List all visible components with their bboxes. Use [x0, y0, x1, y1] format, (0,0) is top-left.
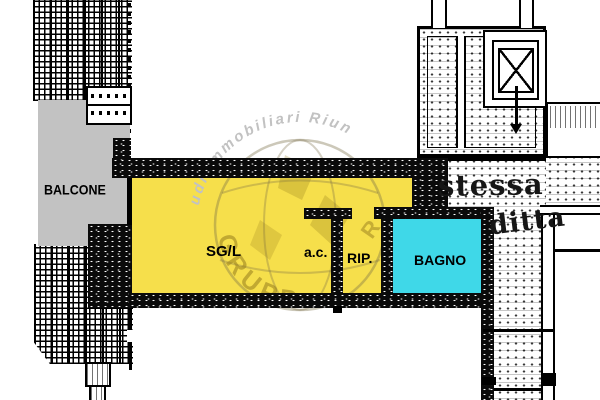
wall-partition-bar: [304, 208, 352, 219]
wall-corridor-crossline-2: [494, 388, 541, 391]
right-extension-room: [546, 102, 600, 158]
stairwell-divider-wall: [456, 36, 466, 148]
extension-hatch: [550, 106, 598, 128]
room-label-sgl: SG/L: [206, 243, 241, 260]
balcony-area-tail: [38, 228, 89, 246]
floor-plan: udi Immobiliari Riun GRUPPO R BALCONE SG…: [0, 0, 600, 400]
stair-arrow-head-icon: [510, 124, 522, 134]
balcony-panel: [86, 86, 132, 125]
door-blob-right: [541, 373, 556, 386]
wall-edge-gap: [127, 330, 134, 342]
wall-thin-left: [127, 178, 132, 225]
corridor-hatch: [488, 214, 542, 400]
neighbor-note-stessa: stessa: [438, 167, 544, 203]
wall-left-chunk: [88, 224, 132, 308]
door-blob-left: [482, 377, 496, 385]
room-label-bagno: BAGNO: [414, 252, 466, 268]
balcony-label: BALCONE: [44, 182, 106, 197]
room-label-ac: a.c.: [304, 244, 327, 260]
wall-top-band: [112, 158, 414, 178]
wall-partition-stem-2: [381, 219, 393, 295]
room-label-rip: RIP.: [347, 250, 372, 266]
wall-bottom-band: [129, 293, 494, 308]
panel-dash-row: [91, 111, 127, 115]
panel-dash-row: [91, 94, 127, 98]
wall-stub-top-right: [519, 0, 534, 28]
panel-divider: [88, 104, 130, 106]
wall-corridor-crossline: [483, 329, 555, 332]
wall-tick: [333, 306, 342, 313]
wall-stub-top-left: [431, 0, 447, 28]
railing-stub-outer: [85, 362, 111, 387]
wall-small-blob: [113, 138, 131, 160]
stair-direction-arrow-icon: [515, 86, 518, 124]
railing-stub-inner: [89, 387, 106, 400]
wall-line-right-room: [555, 249, 600, 252]
wall-partition-stem-1: [331, 219, 343, 295]
wall-bathroom-top: [374, 207, 494, 219]
